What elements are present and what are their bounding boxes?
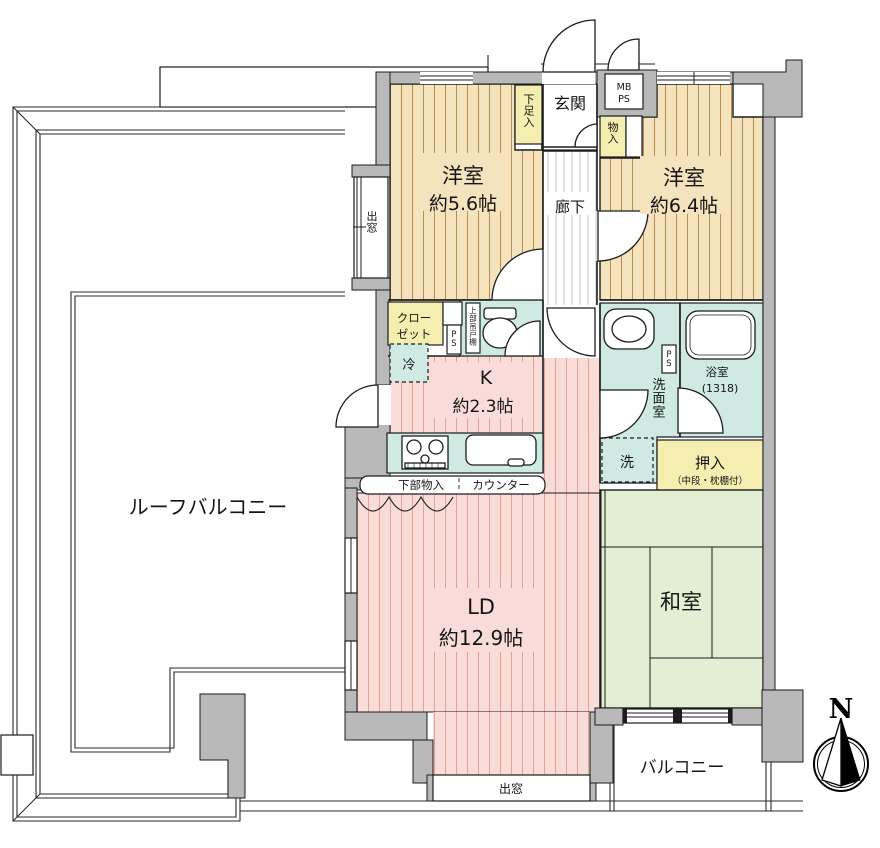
bathtub-icon (686, 311, 755, 359)
label-west2-size: 約6.4帖 (650, 195, 718, 217)
label-oshiire: 押入 (695, 454, 725, 472)
label-japanese-room: 和室 (660, 590, 702, 614)
label-counter: カウンター (472, 478, 530, 492)
door-entrance (543, 20, 595, 72)
label-bathroom-size: (1318) (702, 382, 739, 395)
label-hallway: 廊下 (555, 198, 585, 216)
wall-top-right-block (733, 60, 802, 117)
compass-needle-left (822, 718, 841, 786)
window-japanese-room-1 (623, 709, 677, 723)
label-under-counter: 下部物入 (398, 478, 444, 492)
wall-balcony-right-block (762, 690, 803, 762)
label-closet-2: ゼット (397, 327, 432, 341)
north-compass: N (814, 694, 868, 791)
window-ld-left-1 (345, 538, 357, 593)
label-mb: MB (617, 82, 632, 93)
label-closet-1: クロー (397, 311, 432, 325)
label-ld-size: 約12.9帖 (439, 626, 524, 650)
label-ld-name: LD (467, 595, 495, 619)
label-kitchen-size: 約2.3帖 (452, 397, 513, 417)
label-washer: 洗 (620, 455, 634, 471)
label-storage: 物入 (608, 120, 619, 146)
label-refrigerator: 冷 (402, 358, 415, 373)
wall-pier (200, 694, 245, 798)
label-roof-balcony: ルーフバルコニー (129, 495, 287, 519)
label-mbps: PS (618, 94, 630, 105)
label-west2-name: 洋室 (663, 166, 705, 190)
floor-plan-page: 洋室 約5.6帖 洋室 約6.4帖 玄関 廊下 LD 約12.9帖 K 約2.3… (0, 0, 880, 848)
window-top-west1 (420, 72, 473, 84)
sink-icon (604, 309, 654, 349)
label-shoe-cabinet: 下足入 (524, 93, 535, 129)
wall-right (763, 117, 775, 690)
door-meter-box (608, 39, 639, 70)
label-bay-window-left: 出窓 (367, 209, 378, 235)
label-washroom: 洗面室 (652, 378, 665, 420)
opening-entrance (542, 72, 595, 84)
hallway-floor (543, 147, 597, 305)
label-balcony: バルコニー (640, 758, 725, 778)
ld-bay-floor (433, 712, 590, 775)
label-west1-size: 約5.6帖 (429, 193, 497, 215)
label-west1-name: 洋室 (442, 164, 484, 188)
window-japanese-room-2 (678, 709, 732, 723)
label-ps-1: PS (451, 330, 456, 349)
door-roof-balcony (336, 385, 378, 427)
kitchen-sink-icon (466, 435, 536, 466)
label-upper-cabinet: 上部吊戸棚 (469, 306, 477, 347)
wall-left-upper (376, 72, 390, 167)
ld-extension-floor (543, 358, 600, 497)
label-oshiire-note: （中段・枕棚付） (672, 475, 748, 487)
label-ps-2: PS (666, 350, 671, 369)
stove-icon (402, 436, 448, 469)
wall-left-corner-block (345, 423, 390, 480)
label-entrance: 玄関 (554, 94, 586, 113)
roof-balcony-step (1, 735, 33, 775)
compass-needle-right (841, 718, 860, 786)
floor-plan-canvas: 洋室 約5.6帖 洋室 約6.4帖 玄関 廊下 LD 約12.9帖 K 約2.3… (0, 0, 880, 848)
window-top-west2 (657, 72, 730, 84)
wall-bottom-left (345, 712, 427, 740)
label-kitchen-name: K (480, 367, 493, 389)
window-ld-left-2 (345, 641, 357, 690)
label-bathroom-name: 浴室 (706, 365, 729, 379)
door-hallway (547, 308, 595, 356)
label-bay-window-bottom: 出窓 (499, 781, 523, 796)
